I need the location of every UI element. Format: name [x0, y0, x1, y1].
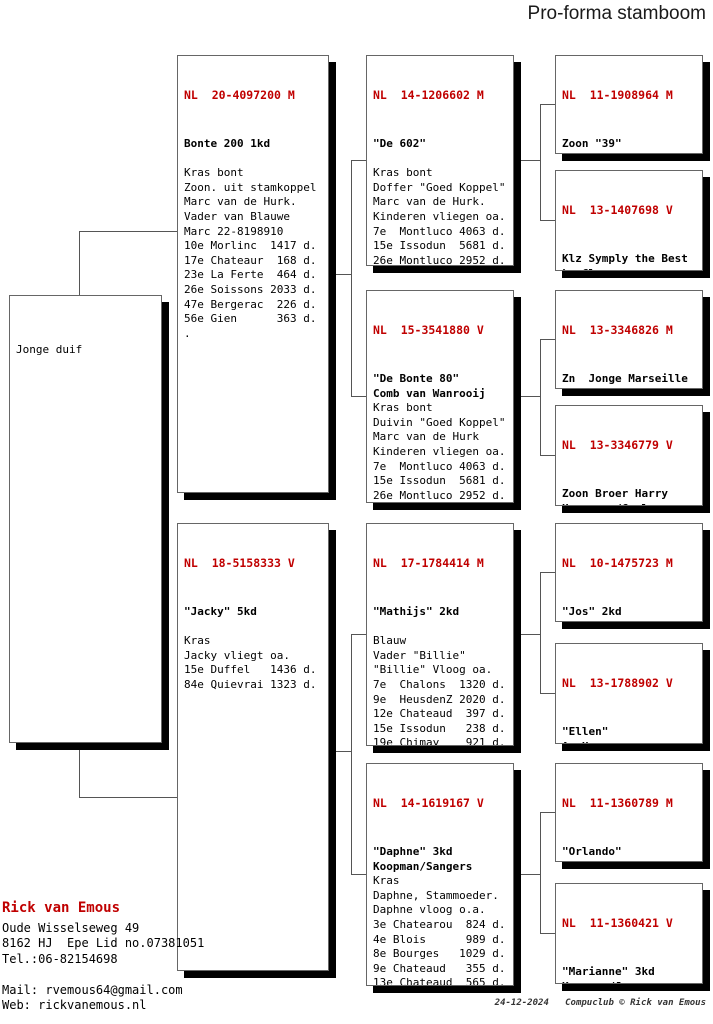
pedigree-box-grandsire-paternal: NL 14-1206602 M "De 602" Kras bontDoffer… [366, 55, 514, 266]
text-line: "Orlando" [562, 845, 696, 860]
box-lines: Jonge duif [16, 328, 155, 357]
connector-line [540, 104, 555, 105]
box-lines: Zoon "39"J VisserKras bontDe "39"was een… [562, 137, 696, 154]
box-lines: "Mathijs" 2kd BlauwVader "Billie""Billie… [373, 605, 507, 746]
pedigree-box-ggp-4: NL 13-3346779 V Zoon Broer HarryHooymans… [555, 405, 703, 506]
text-line: Koopman/Sangers [373, 860, 507, 875]
text-line: 15e Duffel 1436 d. [184, 663, 322, 678]
connector-line [521, 396, 540, 397]
owner-name: Rick van Emous [2, 901, 204, 917]
contact-block: Rick van Emous Oude Wisselseweg 498162 H… [2, 901, 204, 1014]
pedigree-box-sire: NL 20-4097200 M Bonte 200 1kd Kras bontZ… [177, 55, 329, 493]
connector-line [540, 812, 541, 933]
box-lines: Klz Symply the BestL. ClaessensKras bont… [562, 252, 696, 271]
text-line: Doffer "Goed Koppel" [373, 181, 507, 196]
ring-number: NL 13-1788902 V [562, 676, 696, 691]
pedigree-box-ggp-1: NL 11-1908964 M Zoon "39"J VisserKras bo… [555, 55, 703, 154]
text-line: 13e Chateaud 565 d. [373, 976, 507, 986]
text-line: 17e Chateaur 168 d. [184, 254, 322, 269]
text-line: 19e Chimay 921 d. [373, 736, 507, 746]
contact-lines: Oude Wisselseweg 498162 HJ Epe Lid no.07… [2, 921, 204, 1014]
text-line: Kras [184, 634, 322, 649]
connector-line [351, 874, 366, 875]
pedigree-box-ggp-8: NL 11-1360421 V "Marianne" 3kdKoopman/Ja… [555, 883, 703, 984]
box-lines: "Jos" 2kdKoopmanKrasVader van 200 en 201… [562, 605, 696, 622]
text-line: "Daphne" 3kd [373, 845, 507, 860]
text-line: Zoon "39" [562, 137, 696, 152]
text-line: 10e Morlinc 1417 d. [184, 239, 322, 254]
text-line: Zn Jonge Marseille [562, 372, 696, 387]
text-line: 47e Bergerac 226 d. [184, 298, 322, 313]
text-line: Koopman [562, 620, 696, 622]
text-line [16, 328, 155, 343]
text-line: 7e Montluco 4063 d. [373, 225, 507, 240]
text-line: 56e Gien 363 d. [184, 312, 322, 327]
pedigree-box-grandsire-maternal: NL 17-1784414 M "Mathijs" 2kd BlauwVader… [366, 523, 514, 746]
text-line: 3e Chatearou 824 d. [373, 918, 507, 933]
text-line: Kras [373, 874, 507, 889]
text-line: 4e Blois 989 d. [373, 933, 507, 948]
text-line: Duivin "Goed Koppel" [373, 416, 507, 431]
connector-line [351, 160, 366, 161]
text-line: Vader van Blauwe [184, 210, 322, 225]
text-line: Comb van Wanrooij [562, 387, 696, 389]
text-line: Jacky vliegt oa. [184, 649, 322, 664]
pedigree-box-subject: Jonge duif [9, 295, 162, 743]
text-line: Daphne vloog o.a. [373, 903, 507, 918]
connector-line [79, 797, 177, 798]
connector-line [540, 572, 555, 573]
connector-line [79, 742, 80, 797]
box-lines: "Daphne" 3kdKoopman/SangersKrasDaphne, S… [373, 845, 507, 986]
text-line: Kras bont [184, 166, 322, 181]
text-line: 23e La Ferte 464 d. [184, 268, 322, 283]
text-line: 9e Chateaud 355 d. [373, 962, 507, 977]
connector-line [540, 933, 555, 934]
pedigree-box-ggp-3: NL 13-3346826 M Zn Jonge MarseilleComb v… [555, 290, 703, 389]
text-line: 7e Montluco 4063 d. [373, 460, 507, 475]
text-line: Klz Symply the Best [562, 252, 696, 267]
text-line: 8162 HJ Epe Lid no.07381051 [2, 936, 204, 952]
pedigree-box-ggp-6: NL 13-1788902 V "Ellen"A. HupDonker kras… [555, 643, 703, 744]
pedigree-box-ggp-7: NL 11-1360789 M "Orlando"Sangers/Nieuwen… [555, 763, 703, 862]
box-lines: Zn Jonge MarseilleComb van WanrooijBlauw… [562, 372, 696, 389]
text-line: Marc van de Hurk. [184, 195, 322, 210]
text-line: Daphne, Stammoeder. [373, 889, 507, 904]
text-line: 15e Issodun 238 d. [373, 722, 507, 737]
text-line: L. Claessens [562, 267, 696, 271]
connector-line [521, 634, 540, 635]
ring-number: NL 13-1407698 V [562, 203, 696, 218]
text-line: 7e Chalons 1320 d. [373, 678, 507, 693]
text-line: Marc 22-8198910 [184, 225, 322, 240]
page-title: Pro-forma stamboom [528, 3, 706, 25]
connector-line [540, 455, 555, 456]
pedigree-box-granddam-maternal: NL 14-1619167 V "Daphne" 3kdKoopman/Sang… [366, 763, 514, 986]
text-line: Tel.:06-82154698 [2, 952, 204, 968]
text-line: 15e Issodun 5681 d. [373, 474, 507, 489]
pedigree-box-granddam-paternal: NL 15-3541880 V "De Bonte 80"Comb van Wa… [366, 290, 514, 503]
ring-number: NL 14-1206602 M [373, 88, 507, 103]
text-line: 84e Quievrai 1323 d. [184, 678, 322, 693]
ring-number: NL 14-1619167 V [373, 796, 507, 811]
box-lines: "Ellen"A. HupDonker krasHalf zus Champ 8… [562, 725, 696, 744]
connector-line [79, 231, 177, 232]
pedigree-box-ggp-2: NL 13-1407698 V Klz Symply the BestL. Cl… [555, 170, 703, 271]
text-line: "Ellen" [562, 725, 696, 740]
text-line: 26e Montluco 2952 d. [373, 254, 507, 266]
ring-number: NL 13-3346826 M [562, 323, 696, 338]
box-lines: Bonte 200 1kd Kras bontZoon. uit stamkop… [184, 137, 322, 341]
text-line: Blauw [373, 634, 507, 649]
text-line: Hooymans/Cools [562, 502, 696, 506]
text-line: Kinderen vliegen oa. [373, 210, 507, 225]
box-lines: "Orlando"Sangers/NieuwenhuisKras"Orlando… [562, 845, 696, 862]
connector-line [540, 693, 555, 694]
text-line: 12e Chateaud 397 d. [373, 707, 507, 722]
text-line: "Marianne" 3kd [562, 965, 696, 980]
text-line: "Jos" 2kd [562, 605, 696, 620]
ring-number: NL 11-1360421 V [562, 916, 696, 931]
box-lines: "Jacky" 5kd KrasJacky vliegt oa.15e Duff… [184, 605, 322, 693]
connector-line [521, 874, 540, 875]
text-line: Kinderen vliegen oa. [373, 445, 507, 460]
text-line: Koopman/Janssen [562, 980, 696, 984]
text-line: Kras bont [373, 166, 507, 181]
text-line: Vader "Billie" [373, 649, 507, 664]
text-line: Marc van de Hurk [373, 430, 507, 445]
connector-line [540, 220, 555, 221]
box-lines: "Marianne" 3kdKoopman/JanssenKrasSuper K… [562, 965, 696, 984]
text-line: "Jacky" 5kd [184, 605, 322, 620]
ring-number: NL 18-5158333 V [184, 556, 322, 571]
ring-number: NL 17-1784414 M [373, 556, 507, 571]
ring-number: NL 11-1360789 M [562, 796, 696, 811]
text-line: Oude Wisselseweg 49 [2, 921, 204, 937]
connector-line [334, 751, 351, 752]
connector-line [351, 160, 352, 396]
text-line: "De 602" [373, 137, 507, 152]
text-line: Web: rickvanemous.nl [2, 998, 204, 1014]
text-line: Jonge duif [16, 343, 155, 358]
text-line: 26e Soissons 2033 d. [184, 283, 322, 298]
text-line: . [184, 327, 322, 342]
ring-number: NL 15-3541880 V [373, 323, 507, 338]
ring-number: NL 10-1475723 M [562, 556, 696, 571]
text-line: Marc van de Hurk. [373, 195, 507, 210]
text-line: 15e Issodun 5681 d. [373, 239, 507, 254]
connector-line [351, 634, 366, 635]
ring-number: NL 11-1908964 M [562, 88, 696, 103]
connector-line [351, 634, 352, 874]
text-line: Zoon. uit stamkoppel [184, 181, 322, 196]
connector-line [521, 160, 540, 161]
text-line [373, 152, 507, 167]
text-line: 9e HeusdenZ 2020 d. [373, 693, 507, 708]
text-line: Mail: rvemous64@gmail.com [2, 983, 204, 999]
box-lines: "De Bonte 80"Comb van WanrooijKras bontD… [373, 372, 507, 503]
connector-line [540, 812, 555, 813]
text-line: "Billie" Vloog oa. [373, 663, 507, 678]
text-line: Comb van Wanrooij [373, 387, 507, 402]
connector-line [540, 339, 541, 455]
box-lines: "De 602" Kras bontDoffer "Goed Koppel"Ma… [373, 137, 507, 266]
text-line: Sangers/Nieuwenhuis [562, 860, 696, 862]
text-line [2, 967, 204, 983]
footer-credit: 24-12-2024 Compuclub © Rick van Emous [495, 998, 706, 1008]
pedigree-box-ggp-5: NL 10-1475723 M "Jos" 2kdKoopmanKrasVade… [555, 523, 703, 622]
text-line: Zoon Broer Harry [562, 487, 696, 502]
connector-line [79, 231, 80, 295]
ring-number: NL 20-4097200 M [184, 88, 322, 103]
text-line: "Mathijs" 2kd [373, 605, 507, 620]
pedigree-page: Pro-forma stamboom Jonge duif NL 20-4097… [0, 0, 713, 1024]
box-lines: Zoon Broer HarryHooymans/CoolsKras6e NPO… [562, 487, 696, 506]
text-line: "De Bonte 80" [373, 372, 507, 387]
connector-line [540, 339, 555, 340]
connector-line [540, 572, 541, 693]
ring-number: NL 13-3346779 V [562, 438, 696, 453]
connector-line [334, 274, 351, 275]
text-line: 8e Bourges 1029 d. [373, 947, 507, 962]
text-line: A. Hup [562, 740, 696, 744]
text-line [184, 152, 322, 167]
text-line: J Visser [562, 152, 696, 154]
text-line [373, 620, 507, 635]
connector-line [351, 396, 366, 397]
text-line: Bonte 200 1kd [184, 137, 322, 152]
text-line: 26e Montluco 2952 d. [373, 489, 507, 503]
text-line [184, 620, 322, 635]
connector-line [540, 104, 541, 220]
text-line: Kras bont [373, 401, 507, 416]
